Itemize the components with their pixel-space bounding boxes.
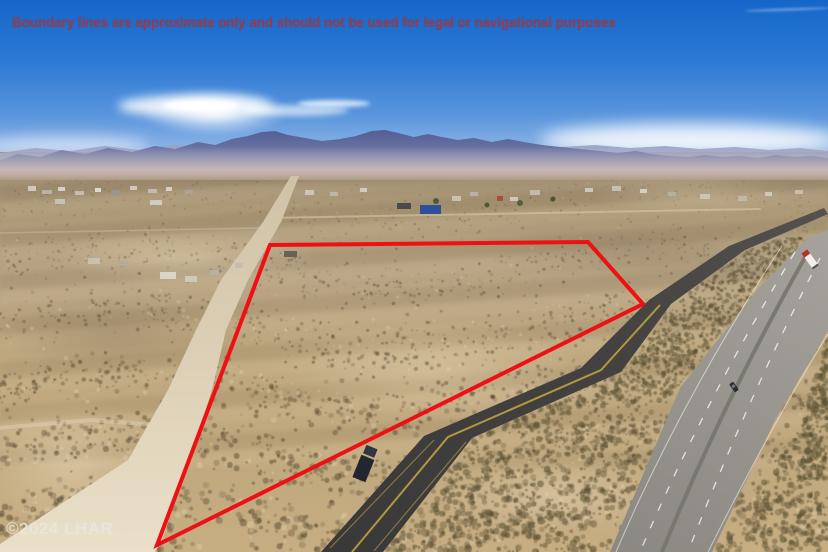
roadside-trailer bbox=[352, 445, 378, 483]
base-haze bbox=[0, 146, 828, 180]
watermark-text: ©2024 LHAR bbox=[6, 519, 113, 539]
shed bbox=[284, 251, 297, 257]
aerial-photo: Boundary lines are approximate only and … bbox=[0, 0, 828, 552]
mountain-range bbox=[0, 130, 828, 180]
highway bbox=[610, 230, 828, 552]
disclaimer-text: Boundary lines are approximate only and … bbox=[12, 15, 792, 30]
blue-roof-building bbox=[420, 205, 441, 214]
terrain-features bbox=[0, 0, 828, 552]
